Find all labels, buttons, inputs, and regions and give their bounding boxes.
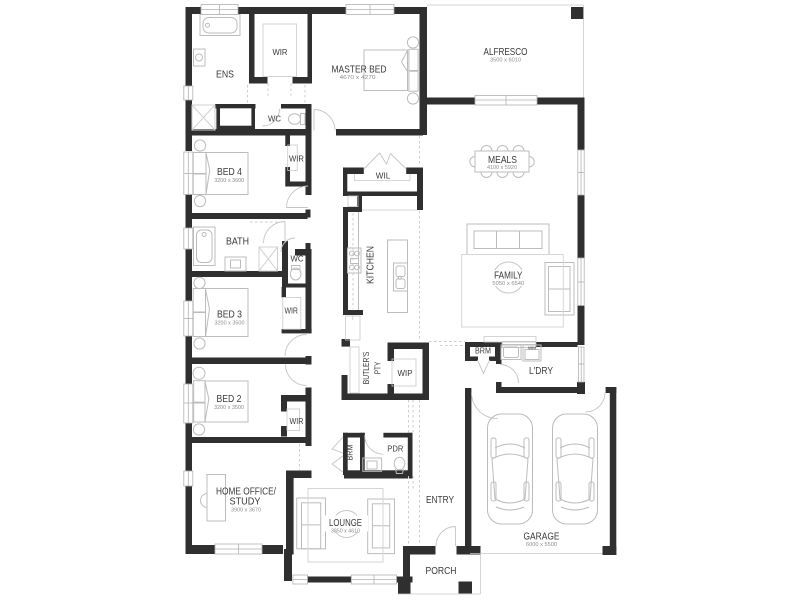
svg-text:WIR: WIR [290,416,304,426]
svg-text:3500 x 6010: 3500 x 6010 [490,57,521,63]
svg-text:3850 x 4610: 3850 x 4610 [331,528,360,534]
svg-text:PDR: PDR [387,443,403,453]
svg-text:PTY: PTY [373,362,383,375]
svg-text:BRM: BRM [475,346,491,356]
svg-text:BED 3: BED 3 [217,309,242,320]
svg-text:3200 x 3600: 3200 x 3600 [214,178,244,184]
svg-text:L'DRY: L'DRY [529,366,553,377]
svg-text:3900 x 3670: 3900 x 3670 [231,507,261,513]
svg-text:BATH: BATH [226,236,249,247]
svg-text:WIL: WIL [376,171,391,181]
svg-text:WIR: WIR [289,154,304,164]
svg-text:WIR: WIR [273,47,288,57]
svg-text:STUDY: STUDY [230,497,261,508]
svg-text:PORCH: PORCH [426,566,457,577]
svg-text:3200 x 3500: 3200 x 3500 [215,320,245,326]
svg-text:WM: WM [528,346,536,351]
svg-text:KITCHEN: KITCHEN [366,246,377,284]
svg-text:WIP: WIP [398,368,413,378]
svg-text:ENTRY: ENTRY [426,495,454,506]
svg-text:BRM: BRM [344,445,354,461]
svg-text:WC: WC [291,254,304,264]
svg-text:5050 x 6540: 5050 x 6540 [492,281,524,287]
svg-text:WIR: WIR [284,306,298,316]
svg-text:FAMILY: FAMILY [494,270,522,282]
svg-text:3200 x 3500: 3200 x 3500 [214,405,244,411]
svg-text:ENS: ENS [216,70,234,81]
svg-text:4670 x 4270: 4670 x 4270 [340,75,376,81]
svg-text:BED 2: BED 2 [217,394,242,405]
svg-text:6000 x 5500: 6000 x 5500 [526,542,557,548]
svg-text:4100 x 5920: 4100 x 5920 [487,165,517,171]
svg-text:WC: WC [268,114,281,124]
svg-text:MASTER BED: MASTER BED [332,63,387,75]
svg-text:LOUNGE: LOUNGE [329,518,362,529]
svg-text:BED 4: BED 4 [217,167,242,178]
svg-text:BUTLER'S: BUTLER'S [361,351,371,384]
